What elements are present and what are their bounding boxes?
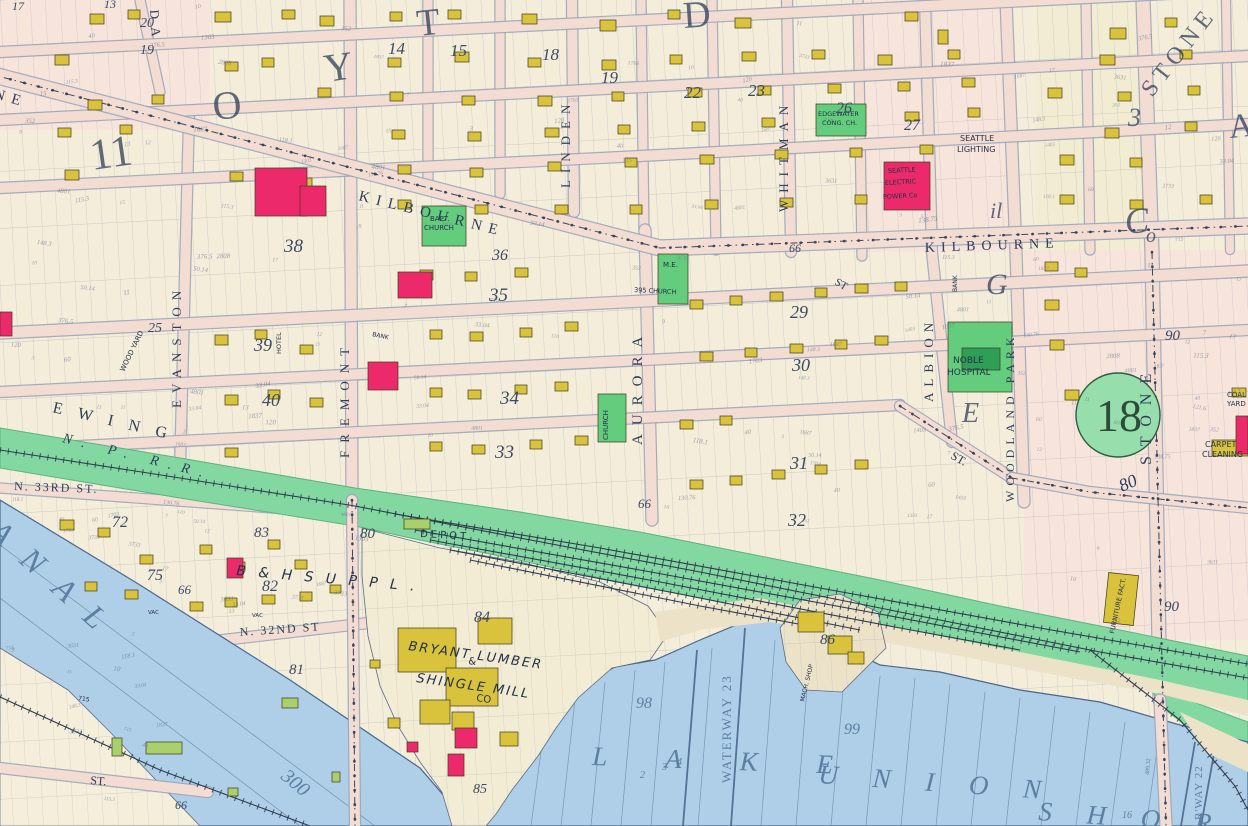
- lot-number: 60: [1113, 420, 1120, 427]
- lot-number: 715: [622, 157, 631, 164]
- landmark-label: CARPET: [1205, 440, 1236, 449]
- building: [565, 322, 578, 331]
- street-name: STONE: [1138, 364, 1155, 465]
- lot-number: 12: [145, 140, 151, 146]
- building: [700, 352, 713, 361]
- building: [152, 95, 164, 104]
- lot-number: 715: [823, 117, 833, 125]
- lot-number: 3733: [676, 255, 689, 261]
- building: [1105, 128, 1119, 138]
- lot-number: 15: [385, 128, 391, 134]
- lot-number: 60: [63, 356, 71, 364]
- building: [770, 292, 783, 301]
- building: [555, 382, 568, 391]
- block-number: 66: [178, 582, 192, 597]
- building: [690, 300, 703, 309]
- lot-number: 10: [663, 504, 670, 511]
- lot-number: 3733: [87, 535, 100, 542]
- landmark-label: CLEANING: [1202, 450, 1243, 459]
- street-name: LINDEN: [558, 98, 573, 188]
- lot-number: 3631: [68, 728, 82, 735]
- block-number: 83: [254, 525, 269, 541]
- building: [855, 284, 868, 293]
- lot-number: 1703: [63, 527, 75, 534]
- building: [545, 128, 559, 137]
- lot-number: 1403: [913, 427, 926, 435]
- lot-number: 120: [11, 342, 22, 350]
- lot-number: 120: [265, 418, 276, 426]
- lot-number: 1837: [248, 412, 263, 421]
- building: [612, 92, 624, 101]
- lot-number: 115.3: [65, 79, 78, 86]
- lot-number: 352: [340, 25, 352, 33]
- block-number: 86: [820, 632, 836, 648]
- building: [282, 698, 298, 708]
- building: [404, 519, 430, 529]
- lot-number: 13: [242, 404, 250, 411]
- lot-number: 3733: [1161, 184, 1174, 190]
- building: [465, 272, 477, 281]
- block-number: 38: [283, 236, 304, 257]
- landmark-label: CHURCH: [602, 410, 610, 440]
- lot-number: 4801: [341, 511, 352, 518]
- building: [1130, 158, 1142, 167]
- lot-number: 1303: [907, 513, 918, 519]
- landmark-label: SEATTLE: [888, 166, 916, 175]
- lot-number: 1703: [567, 97, 578, 104]
- building: [790, 344, 803, 353]
- lot-number: 33.04: [415, 402, 429, 410]
- block-number: 40: [262, 390, 280, 410]
- building: [388, 58, 401, 67]
- building: [128, 10, 140, 19]
- lot-number: 130.76: [678, 494, 697, 502]
- lot-number: 352: [1209, 427, 1219, 434]
- block-number: 30: [791, 355, 810, 375]
- lot-number: 1687: [175, 441, 186, 448]
- building: [1060, 155, 1074, 165]
- building: [798, 612, 824, 632]
- lot-number: 120: [177, 509, 186, 516]
- lot-number: 12: [1164, 124, 1172, 132]
- addition-letter: A: [1227, 107, 1248, 146]
- building: [1185, 122, 1197, 131]
- block-number: 90: [1164, 599, 1180, 615]
- water-label: WATERWAY 23: [719, 674, 734, 783]
- lot-number: 1687: [830, 342, 843, 348]
- addition-letter: G: [986, 268, 1008, 301]
- building: [90, 14, 104, 24]
- landmark-label: VAC: [252, 613, 263, 619]
- lot-number: 1403: [442, 222, 453, 228]
- block-number: 66: [175, 798, 187, 812]
- lot-number: 118.1: [12, 496, 24, 503]
- lot-number: 50.14: [808, 452, 821, 459]
- block-number: 20: [140, 16, 154, 31]
- building: [905, 12, 918, 21]
- building: [500, 732, 518, 746]
- building: [430, 330, 442, 339]
- lot-number: 11: [123, 288, 131, 297]
- building: [1118, 92, 1131, 101]
- lot-number: 10: [427, 432, 433, 438]
- landmark-label: YARD: [1226, 400, 1246, 408]
- building: [430, 388, 442, 397]
- landmark-label: SEATTLE: [960, 134, 994, 143]
- water-label: R'WAY 22: [1193, 765, 1205, 820]
- building: [618, 125, 630, 134]
- block-number: 18: [542, 45, 560, 64]
- building: [855, 195, 867, 204]
- building: [472, 445, 485, 454]
- building: [850, 148, 862, 157]
- building: [920, 145, 933, 154]
- lot-number: 352: [631, 265, 641, 271]
- lot-number: 40: [744, 429, 752, 436]
- landmark-label: VAC: [148, 610, 159, 616]
- building: [225, 448, 238, 457]
- lot-number: 1303: [201, 34, 216, 42]
- block-number: 25: [148, 321, 162, 336]
- building: [300, 186, 326, 216]
- building: [112, 738, 122, 756]
- lot-number: 148.3: [798, 375, 810, 382]
- building: [58, 128, 71, 137]
- lot-number: 148.3: [807, 346, 820, 353]
- building: [600, 20, 616, 31]
- street: [1086, 0, 1090, 250]
- lot-number: 3631: [1206, 559, 1218, 565]
- block-number: 36: [491, 247, 508, 264]
- building: [968, 108, 980, 117]
- building: [680, 420, 693, 429]
- building: [468, 390, 481, 399]
- lot-number: 12: [204, 528, 210, 534]
- addition-letter: il: [990, 198, 1002, 223]
- lot-number: 115.3: [942, 255, 955, 261]
- building: [772, 470, 785, 479]
- block-number: 29: [790, 302, 808, 322]
- building: [200, 545, 212, 554]
- lot-number: 3: [780, 434, 784, 440]
- lot-number: 33.04: [1218, 158, 1235, 166]
- building: [448, 10, 461, 19]
- building: [146, 742, 182, 754]
- street: [712, 0, 716, 250]
- landmark-label: ELECTRIC: [885, 177, 917, 187]
- plat-map-screenshot: 18 KILBOURNEKILBOURNEKILBOURNEE W I N GN…: [0, 0, 1248, 826]
- ward-number: 18: [1096, 390, 1142, 441]
- building: [88, 100, 102, 110]
- lot-number: 2808: [1106, 353, 1121, 361]
- building: [520, 328, 532, 337]
- building: [268, 540, 280, 549]
- lot-number: 4801: [957, 306, 970, 313]
- building: [690, 480, 703, 489]
- addition-letter: T: [415, 1, 442, 45]
- building: [1236, 416, 1248, 454]
- building: [98, 528, 110, 537]
- building: [300, 345, 313, 354]
- building: [848, 652, 864, 664]
- building: [370, 660, 380, 668]
- block-number: 84: [474, 609, 490, 626]
- lot-number: 11: [359, 204, 365, 211]
- building: [1110, 28, 1126, 39]
- lot-number: 4801: [57, 188, 71, 196]
- building: [407, 742, 418, 752]
- landmark-label: HOSPITAL: [947, 368, 991, 378]
- building: [392, 130, 405, 139]
- lot-number: 120: [1211, 135, 1222, 143]
- lot-number: 4801: [1124, 367, 1136, 375]
- building: [895, 282, 907, 291]
- building: [742, 52, 756, 61]
- lot-number: 115.3: [1193, 352, 1209, 360]
- addition-letter: O: [210, 81, 243, 129]
- building: [670, 55, 682, 64]
- building: [1165, 18, 1177, 27]
- addition-letter: o: [1146, 225, 1156, 247]
- building: [368, 362, 398, 390]
- landmark-label: LIGHTING: [957, 145, 995, 154]
- lot-number: 1837: [940, 60, 955, 69]
- block-number: 17: [12, 0, 25, 13]
- lot-number: 1837: [156, 722, 169, 729]
- building: [745, 348, 757, 357]
- lot-number: 352: [1017, 371, 1026, 378]
- building: [390, 12, 402, 21]
- lot-number: 40: [617, 143, 624, 150]
- building: [730, 296, 742, 305]
- lot-number: 60: [1088, 187, 1094, 193]
- block-number: 81: [289, 662, 304, 678]
- lot-number: 15: [39, 89, 47, 97]
- building: [668, 10, 680, 19]
- lot-number: 352: [1112, 102, 1121, 109]
- lot-number: 3: [158, 579, 163, 585]
- building: [528, 58, 541, 67]
- building: [332, 772, 340, 782]
- building: [522, 14, 537, 24]
- block-number: 82: [262, 578, 278, 595]
- block-number: 66: [789, 241, 801, 255]
- building: [962, 78, 975, 87]
- lot-number: 4801: [471, 425, 483, 432]
- landmark-label: NOBLE: [953, 356, 984, 366]
- building: [720, 416, 732, 425]
- building: [700, 155, 714, 164]
- block-number: 66: [638, 496, 652, 511]
- lot-number: 12: [316, 332, 323, 339]
- building: [0, 312, 12, 336]
- lot-number: 40: [1194, 395, 1200, 402]
- building: [705, 200, 718, 209]
- lot-number: 115.3: [103, 796, 115, 803]
- lot-number: 1837: [1189, 427, 1201, 434]
- building: [228, 788, 238, 796]
- lot-number: 1687: [193, 125, 208, 134]
- lot-number: 1403: [1044, 141, 1055, 149]
- block-number: 31: [789, 453, 808, 473]
- building: [530, 440, 542, 449]
- building: [1045, 300, 1059, 310]
- lot-number: 60: [92, 517, 99, 524]
- building: [390, 92, 403, 101]
- landmark-label: BANK: [952, 274, 959, 292]
- lot-number: 11: [1071, 399, 1077, 406]
- addition-letter: 11: [87, 125, 136, 179]
- building: [1050, 340, 1064, 350]
- block-number: 98: [636, 695, 652, 712]
- lot-number: 10: [32, 260, 38, 266]
- building: [878, 55, 892, 65]
- block-number: 99: [844, 721, 860, 738]
- building: [462, 96, 475, 105]
- street-name: EVANSTON: [169, 284, 184, 408]
- lot-number: 118.1: [1043, 194, 1055, 200]
- building: [538, 96, 552, 106]
- building: [470, 168, 483, 177]
- lot-number: 1703: [627, 60, 639, 67]
- lot-number: 120: [554, 117, 565, 125]
- building: [1100, 55, 1115, 65]
- block-number: 33: [494, 442, 514, 463]
- building: [828, 84, 841, 93]
- building: [448, 754, 464, 776]
- lot-number: 12: [1036, 447, 1042, 454]
- block-number: 85: [473, 782, 487, 797]
- lot-number: 17: [272, 257, 278, 264]
- block-number: 19: [601, 68, 619, 87]
- lot-number: 2808: [216, 253, 231, 260]
- block-number: 90: [1165, 328, 1181, 344]
- addition-letter: E: [961, 398, 979, 429]
- building: [812, 50, 825, 59]
- addition-letter: 3: [1127, 103, 1141, 132]
- lot-number: 352: [24, 117, 36, 125]
- building: [948, 50, 960, 59]
- lot-number: 50.14: [193, 519, 205, 526]
- building: [475, 205, 488, 214]
- building: [855, 460, 868, 469]
- building: [420, 700, 450, 724]
- lot-number: 138.75: [1154, 454, 1171, 460]
- block-number: 14: [388, 39, 406, 58]
- street-name: N. 33RD ST.: [14, 479, 99, 496]
- building: [735, 18, 751, 28]
- block-number: 23: [748, 81, 765, 100]
- building: [938, 30, 948, 44]
- building: [262, 595, 275, 604]
- building: [282, 10, 295, 19]
- building: [255, 168, 307, 216]
- building: [225, 395, 238, 405]
- landmark-label: HOTEL: [275, 332, 283, 354]
- lot-number: 376.5: [149, 41, 166, 49]
- building: [388, 718, 400, 728]
- lot-number: 10: [195, 4, 202, 11]
- building: [65, 170, 79, 180]
- landmark-label: CO: [476, 693, 492, 706]
- block-number: 15: [450, 41, 467, 60]
- lot-number: 376.5: [196, 252, 213, 261]
- block-number: 39: [253, 335, 272, 355]
- building: [1048, 88, 1062, 98]
- block-number: 26: [836, 100, 852, 117]
- lot-number: 40: [142, 743, 149, 750]
- lot-number: 3631: [66, 643, 79, 650]
- building: [190, 602, 203, 611]
- lot-number: 60: [1036, 417, 1042, 423]
- building: [1075, 268, 1087, 277]
- block-number: 27: [904, 117, 921, 134]
- lot-number: 352: [801, 518, 810, 525]
- lot-number: 15: [119, 200, 125, 206]
- lot-number: 1837: [373, 54, 384, 61]
- building: [455, 728, 477, 748]
- lot-number: 1837: [1038, 266, 1049, 272]
- building: [470, 332, 483, 341]
- street-name: WHITMAN: [776, 99, 791, 212]
- lot-number: 4801: [734, 204, 746, 212]
- street-name: AURORA: [630, 328, 646, 445]
- block-number: 13: [104, 0, 116, 11]
- building: [692, 122, 705, 131]
- block-number: 34: [499, 388, 520, 409]
- street-name: ALBION: [921, 317, 936, 402]
- building: [125, 590, 138, 599]
- street: [645, 230, 652, 520]
- building: [398, 272, 432, 298]
- building: [452, 712, 474, 730]
- lot-number: 50.14: [414, 374, 427, 381]
- building: [815, 288, 827, 297]
- landmark-label: M.E.: [663, 261, 678, 269]
- street: [641, 0, 644, 228]
- building: [875, 336, 888, 345]
- building: [630, 205, 642, 214]
- lot-number: 11: [1147, 262, 1154, 270]
- building: [262, 58, 274, 67]
- lot-number: 13: [228, 609, 234, 615]
- building: [320, 16, 334, 26]
- building: [398, 165, 411, 174]
- building: [555, 205, 568, 214]
- street-name: ST.: [90, 773, 107, 788]
- building: [310, 398, 323, 407]
- lot-number: 60: [928, 481, 936, 488]
- building: [1060, 195, 1074, 204]
- building: [1188, 86, 1200, 95]
- lot-number: 10: [113, 665, 121, 674]
- building: [140, 555, 153, 564]
- lot-number: 40: [737, 96, 744, 104]
- map-canvas: 18 KILBOURNEKILBOURNEKILBOURNEE W I N GN…: [0, 0, 1248, 826]
- building: [898, 82, 910, 91]
- building: [215, 335, 228, 345]
- building: [1200, 195, 1212, 204]
- lot-number: 40: [834, 487, 841, 494]
- building: [515, 268, 528, 277]
- block-number: 22: [684, 83, 702, 102]
- addition-letter: D: [682, 0, 712, 37]
- building: [730, 476, 742, 485]
- building: [55, 55, 69, 65]
- lot-number: 3631: [824, 178, 837, 184]
- lot-number: 1837: [1154, 363, 1165, 370]
- building: [215, 12, 231, 22]
